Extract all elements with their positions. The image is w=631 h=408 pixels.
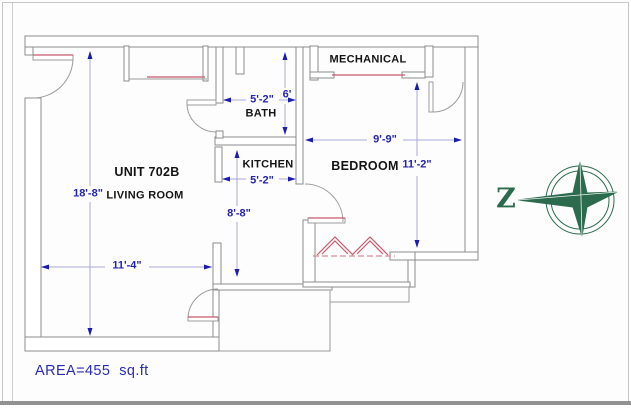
area-label: AREA=455 sq.ft xyxy=(35,364,149,379)
hall-door-leaf xyxy=(429,82,433,112)
balcony-door-arc xyxy=(33,58,73,98)
wall-right xyxy=(465,47,478,260)
wall-bedcloset-bottom xyxy=(303,282,410,287)
bath-door-leaf xyxy=(187,100,216,105)
bedroom-door-leaf xyxy=(308,218,345,223)
dim-text-11-4: 11'-4" xyxy=(112,261,141,272)
floor-plan-page: UNIT 702B LIVING ROOM BATH KITCHEN BEDRO… xyxy=(0,0,631,408)
bedcloset-hanger-2-inner xyxy=(357,241,383,254)
wall-bath-bottom xyxy=(215,137,303,145)
wall-top xyxy=(25,36,478,47)
wall-mech-sill-right xyxy=(402,72,425,78)
unit-title: UNIT 702B xyxy=(114,166,179,179)
dim-text-kitchen-5-2: 5'-2" xyxy=(250,176,274,187)
dim-text-11-2: 11'-2" xyxy=(402,160,431,171)
bedcloset-hanger-1-inner xyxy=(322,241,348,254)
wall-mech-right xyxy=(425,46,433,77)
wall-livingroom-stub xyxy=(213,243,221,284)
wall-bath-chase xyxy=(236,47,244,74)
wall-bedcloset-left xyxy=(303,220,315,282)
wall-bedroom-left xyxy=(296,47,303,184)
room-label-kitchen: KITCHEN xyxy=(243,160,294,171)
room-label-living-room: LIVING ROOM xyxy=(106,191,183,202)
floor-plan-drawing xyxy=(0,0,631,408)
wall-left-stub xyxy=(25,47,33,55)
north-indicator-letter: Z xyxy=(496,186,516,213)
wall-closet-left xyxy=(124,46,129,81)
dim-text-6: 6' xyxy=(283,90,292,101)
wall-mech-sill-left xyxy=(310,72,334,78)
wall-bath-left-upper xyxy=(216,47,223,103)
bedcloset-hanger-2 xyxy=(352,237,388,255)
dim-text-18-8: 18'-8" xyxy=(73,189,103,200)
dim-text-8-8: 8'-8" xyxy=(227,209,251,220)
wall-closet-right xyxy=(203,46,208,81)
room-label-bedroom: BEDROOM xyxy=(331,160,398,173)
bedcloset-hanger-1 xyxy=(317,237,353,255)
dim-text-9-9: 9'-9" xyxy=(373,135,397,146)
hall-door-arc xyxy=(433,82,463,112)
wall-bedroom-bottom xyxy=(415,252,478,260)
room-label-bath: BATH xyxy=(246,109,277,120)
balcony-door-leaf xyxy=(33,55,73,60)
wall-kitchen-left xyxy=(215,147,222,182)
wall-entry-step xyxy=(213,290,219,337)
bedroom-door-arc xyxy=(305,184,343,222)
room-label-mechanical: MECHANICAL xyxy=(330,55,407,66)
wall-bedcloset-stub xyxy=(390,252,415,260)
dim-text-bath-5-2: 5'-2" xyxy=(250,95,274,106)
wall-bottom xyxy=(25,337,219,351)
compass-rose xyxy=(518,162,617,236)
wall-left xyxy=(25,98,41,337)
closet-outer-line xyxy=(330,287,409,302)
bath-door-arc xyxy=(187,103,216,132)
outline-details xyxy=(129,79,409,351)
wall-bath-left-lower xyxy=(216,131,223,138)
corridor-outer-line xyxy=(219,291,330,351)
